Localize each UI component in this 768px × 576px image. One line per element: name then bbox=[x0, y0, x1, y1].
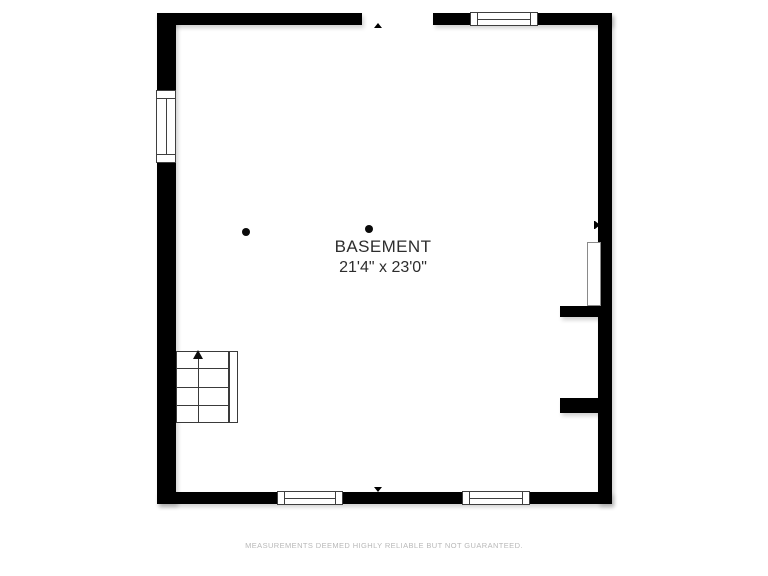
support-column-left bbox=[242, 228, 250, 236]
room-dimensions: 21'4" x 23'0" bbox=[283, 257, 483, 279]
stair-tread-line bbox=[177, 405, 228, 406]
stairs-up-arrow-icon bbox=[193, 350, 203, 359]
entry-marker-bottom-icon bbox=[374, 487, 382, 492]
wall-top-left-segment bbox=[157, 13, 362, 25]
window-bottom-left-icon bbox=[277, 491, 343, 505]
wall-stub-upper bbox=[560, 306, 601, 317]
wall-left bbox=[157, 13, 176, 504]
staircase-railing bbox=[229, 351, 238, 423]
disclaimer-text: MEASUREMENTS DEEMED HIGHLY RELIABLE BUT … bbox=[0, 541, 768, 550]
stair-tread-line bbox=[177, 368, 228, 369]
entry-marker-top-icon bbox=[374, 23, 382, 28]
support-column-right bbox=[365, 225, 373, 233]
stairs-up-arrow-stem bbox=[198, 358, 199, 423]
room-label: BASEMENT bbox=[283, 237, 483, 257]
utility-chase bbox=[587, 242, 601, 306]
window-left-icon bbox=[156, 90, 176, 163]
floorplan-canvas: BASEMENT 21'4" x 23'0" MEASUREMENTS DEEM… bbox=[0, 0, 768, 576]
entry-marker-right-icon bbox=[595, 221, 600, 229]
room-label-block: BASEMENT 21'4" x 23'0" bbox=[283, 237, 483, 279]
window-top-icon bbox=[470, 12, 538, 26]
staircase bbox=[176, 351, 229, 423]
stair-tread-line bbox=[177, 387, 228, 388]
window-bottom-right-icon bbox=[462, 491, 530, 505]
wall-bottom bbox=[157, 492, 612, 504]
wall-stub-lower bbox=[560, 398, 601, 413]
